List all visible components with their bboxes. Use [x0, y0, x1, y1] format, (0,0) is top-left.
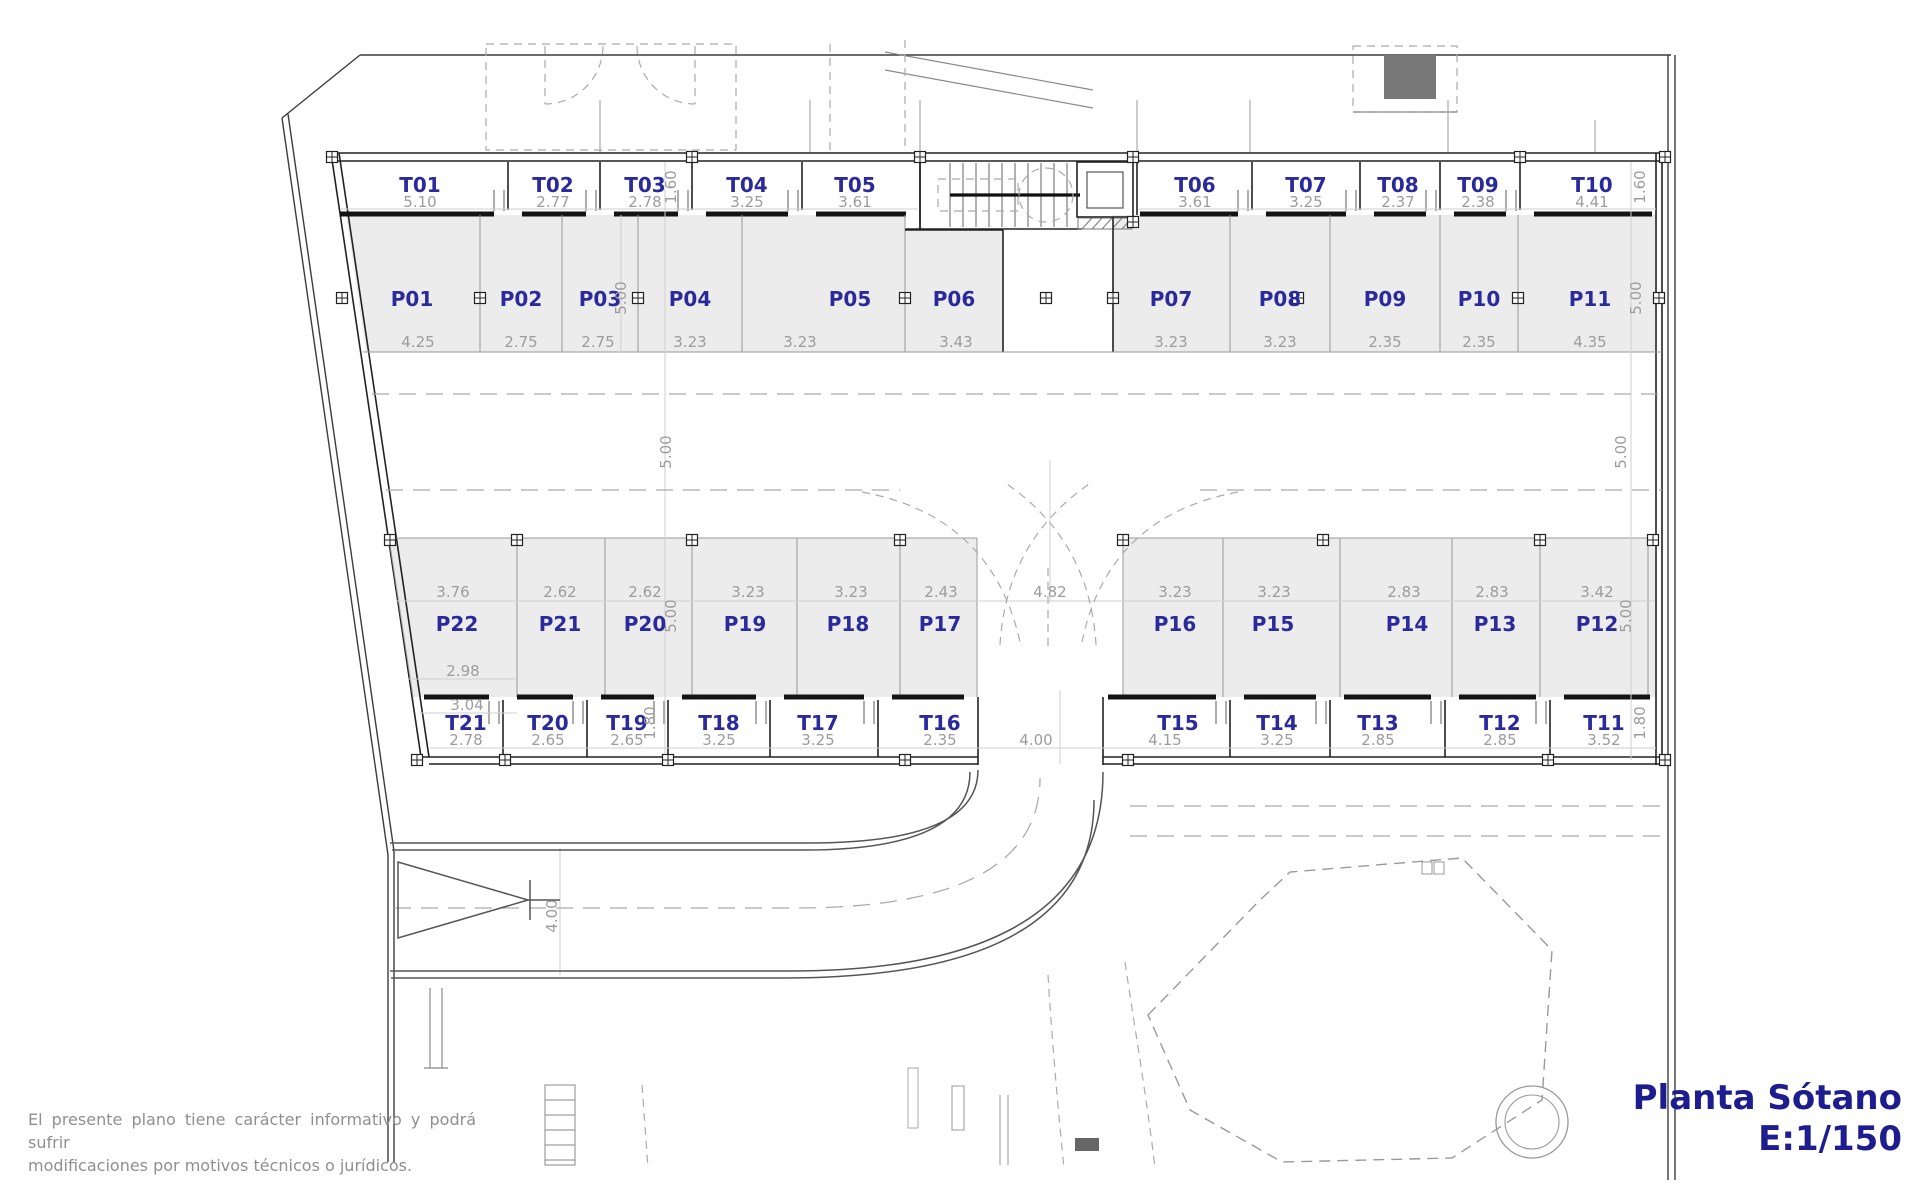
- storage-dim: 2.65: [610, 731, 643, 749]
- aisle-depth-dim: 5.00: [1612, 435, 1630, 468]
- parking-dim: 2.83: [1387, 583, 1420, 601]
- storage-dim: 4.41: [1575, 193, 1608, 211]
- parking-label: P11: [1569, 287, 1612, 311]
- stall-depth-dim: 5.00: [1617, 599, 1635, 632]
- parking-label: P14: [1386, 612, 1429, 636]
- parking-dim: 4.35: [1573, 333, 1606, 351]
- storage-top-labels: T01 5.10 T02 2.77 T03 2.78 T04 3.25 T05 …: [399, 170, 1649, 211]
- parking-label: P22: [436, 612, 479, 636]
- aisle-depth-dim: 5.00: [657, 435, 675, 468]
- column-grid-stubs: [600, 100, 1595, 152]
- parking-dim: 3.23: [783, 333, 816, 351]
- ramp-width-dim: 4.00: [543, 899, 561, 932]
- parking-label: P08: [1259, 287, 1302, 311]
- small-stair-symbol: [545, 1085, 575, 1165]
- aisle-center-dim: 4.82: [1033, 583, 1066, 601]
- storage-dim: 2.37: [1381, 193, 1414, 211]
- parking-dim: 2.35: [1462, 333, 1495, 351]
- storage-dim: 2.77: [536, 193, 569, 211]
- parking-dim: 3.76: [436, 583, 469, 601]
- parking-dim: 3.23: [1158, 583, 1191, 601]
- parking-dim: 2.62: [543, 583, 576, 601]
- elevator-shaft-above: [1384, 55, 1436, 99]
- plan-scale: E:1/150: [1633, 1119, 1902, 1160]
- parking-label: P04: [669, 287, 712, 311]
- parking-dim: 3.23: [1257, 583, 1290, 601]
- band-depth-dim: 1.80: [641, 706, 659, 739]
- storage-dim: 3.25: [1289, 193, 1322, 211]
- parking-label: P15: [1252, 612, 1295, 636]
- parking-label: P01: [391, 287, 434, 311]
- parking-dim: 3.23: [1154, 333, 1187, 351]
- parking-dim: 4.25: [401, 333, 434, 351]
- tree-circle-inner: [1505, 1095, 1559, 1149]
- parking-label: P10: [1458, 287, 1501, 311]
- storage-dim: 3.52: [1587, 731, 1620, 749]
- parking-label: P07: [1150, 287, 1193, 311]
- parking-label: P18: [827, 612, 870, 636]
- parking-label: P17: [919, 612, 962, 636]
- stall-depth-dim: 5.00: [1627, 281, 1645, 314]
- stall-depth-dim: 5.00: [612, 281, 630, 314]
- site-extras: [424, 858, 1568, 1168]
- storage-dim: 2.35: [923, 731, 956, 749]
- parking-dim: 3.43: [939, 333, 972, 351]
- storage-dim: 2.65: [531, 731, 564, 749]
- stall-depth-dim: 5.00: [662, 599, 680, 632]
- parking-dim: 3.23: [731, 583, 764, 601]
- extra-dim: 2.98: [446, 662, 479, 680]
- disclaimer-line1: El presente plano tiene carácter informa…: [28, 1108, 476, 1154]
- storage-bottom-labels: T21 2.78 T20 2.65 T19 2.65 T18 3.25 T17 …: [445, 706, 1649, 749]
- floor-plan-page: T01 5.10 T02 2.77 T03 2.78 T04 3.25 T05 …: [0, 0, 1920, 1200]
- storage-dim: 4.15: [1148, 731, 1181, 749]
- plan-title: Planta Sótano: [1633, 1078, 1902, 1119]
- disclaimer-line2: modificaciones por motivos técnicos o ju…: [28, 1154, 476, 1177]
- parking-dim: 3.23: [1263, 333, 1296, 351]
- storage-dim: 3.25: [801, 731, 834, 749]
- band-depth-dim: 1.60: [662, 170, 680, 203]
- ramp-direction-arrow: [398, 862, 528, 938]
- elevator-shaft: [1077, 162, 1133, 217]
- parking-dim: 3.23: [673, 333, 706, 351]
- parking-dim: 3.42: [1580, 583, 1613, 601]
- band-depth-dim: 1.80: [1631, 706, 1649, 739]
- storage-dim: 2.78: [628, 193, 661, 211]
- parking-label: P21: [539, 612, 582, 636]
- parking-dim: 2.35: [1368, 333, 1401, 351]
- parking-label: P13: [1474, 612, 1517, 636]
- stair-core: [905, 162, 1133, 229]
- parking-label: P06: [933, 287, 976, 311]
- parking-label: P19: [724, 612, 767, 636]
- storage-dim: 3.61: [1178, 193, 1211, 211]
- floor-plan-drawing: T01 5.10 T02 2.77 T03 2.78 T04 3.25 T05 …: [0, 0, 1920, 1200]
- parking-label: P12: [1576, 612, 1619, 636]
- storage-dim: 3.25: [730, 193, 763, 211]
- ramp-width-dim: 4.00: [1019, 731, 1052, 749]
- elevator-car: [1087, 172, 1123, 208]
- parking-dim: 2.75: [504, 333, 537, 351]
- ramp-road: [390, 770, 1662, 1168]
- storage-dim: 2.85: [1483, 731, 1516, 749]
- storage-dim: 3.61: [838, 193, 871, 211]
- upper-floor-dashed-outline: [486, 40, 1457, 150]
- parking-label: P02: [500, 287, 543, 311]
- title-block: Planta Sótano E:1/150: [1633, 1078, 1902, 1160]
- parking-dim: 3.23: [834, 583, 867, 601]
- parking-label: P09: [1364, 287, 1407, 311]
- storage-dim: 2.85: [1361, 731, 1394, 749]
- storage-dim: 5.10: [403, 193, 436, 211]
- storage-dim: 2.38: [1461, 193, 1494, 211]
- disclaimer-note: El presente plano tiene carácter informa…: [28, 1108, 476, 1177]
- parking-dim: 2.62: [628, 583, 661, 601]
- band-depth-dim: 1.60: [1631, 170, 1649, 203]
- parking-label: P05: [829, 287, 872, 311]
- storage-dim: 3.25: [702, 731, 735, 749]
- parking-dim: 2.43: [924, 583, 957, 601]
- storage-dim: 2.78: [449, 731, 482, 749]
- storage-dim: 3.25: [1260, 731, 1293, 749]
- parking-dim: 2.83: [1475, 583, 1508, 601]
- parking-dim: 2.75: [581, 333, 614, 351]
- parking-label: P20: [624, 612, 667, 636]
- landscape-dashed-outline: [1148, 858, 1552, 1162]
- parking-label: P16: [1154, 612, 1197, 636]
